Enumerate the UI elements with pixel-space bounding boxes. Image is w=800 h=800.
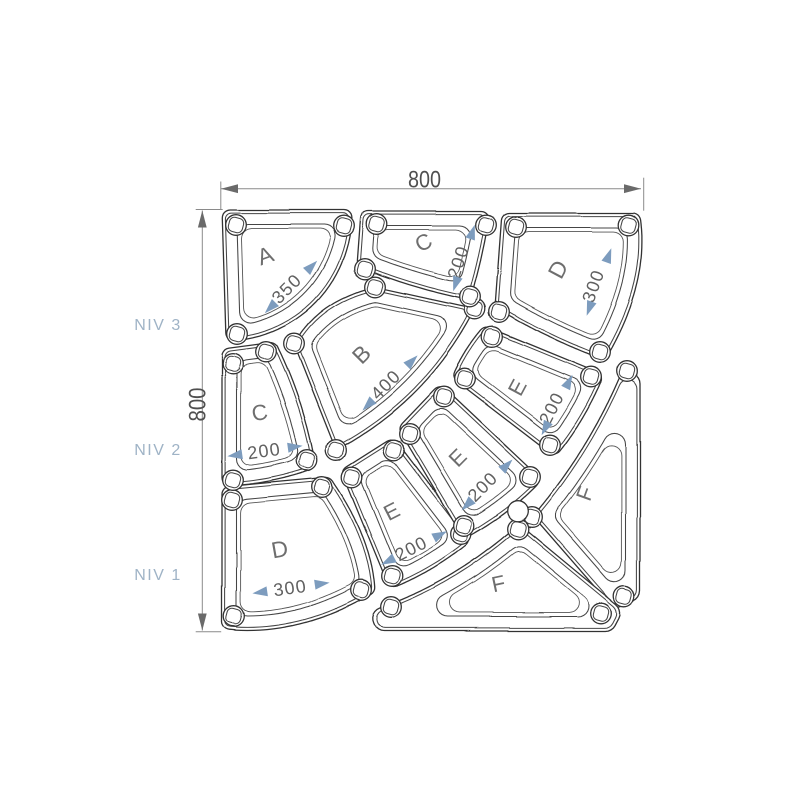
- svg-text:NIV 1: NIV 1: [134, 567, 182, 584]
- svg-text:800: 800: [408, 167, 441, 194]
- svg-text:800: 800: [185, 388, 212, 422]
- svg-text:NIV 3: NIV 3: [134, 317, 182, 334]
- svg-text:NIV 2: NIV 2: [134, 442, 182, 459]
